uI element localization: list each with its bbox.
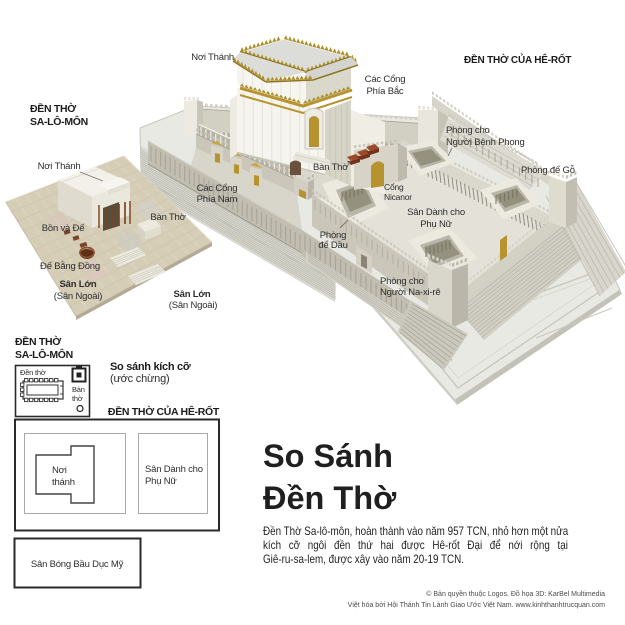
svg-text:Bồn và Đế: Bồn và Đế xyxy=(42,223,85,234)
svg-text:Sân Lớn: Sân Lớn xyxy=(173,289,210,300)
svg-text:Phòng cho: Phòng cho xyxy=(446,125,490,136)
svg-text:Nơi Thánh: Nơi Thánh xyxy=(38,161,81,172)
svg-text:So Sánh: So Sánh xyxy=(263,438,393,474)
svg-text:Đền Thờ: Đền Thờ xyxy=(263,480,397,516)
svg-text:ĐỀN THỜ CỦA HÊ-RỐT: ĐỀN THỜ CỦA HÊ-RỐT xyxy=(108,404,220,418)
svg-text:Đền thờ: Đền thờ xyxy=(20,368,46,377)
svg-text:SA-LÔ-MÔN: SA-LÔ-MÔN xyxy=(30,115,88,128)
svg-text:ĐỀN THỜ CỦA HÊ-RỐT: ĐỀN THỜ CỦA HÊ-RỐT xyxy=(464,52,571,66)
svg-text:thờ: thờ xyxy=(72,394,83,403)
svg-text:Các Cổng: Các Cổng xyxy=(365,74,406,85)
svg-text:So sánh kích cỡ: So sánh kích cỡ xyxy=(110,361,191,373)
svg-text:Đế Bằng Đồng: Đế Bằng Đồng xyxy=(40,261,100,272)
svg-text:(Sân Ngoài): (Sân Ngoài) xyxy=(169,300,218,311)
svg-text:Cổng: Cổng xyxy=(384,182,404,192)
svg-text:Sân Dành cho: Sân Dành cho xyxy=(145,464,203,475)
svg-text:Phòng để Gỗ: Phòng để Gỗ xyxy=(521,165,575,176)
svg-text:Sân Dành cho: Sân Dành cho xyxy=(407,207,465,218)
svg-text:Người Na-xi-rê: Người Na-xi-rê xyxy=(380,287,440,298)
svg-text:(ước chừng): (ước chừng) xyxy=(110,373,169,385)
svg-text:Bàn: Bàn xyxy=(72,385,85,394)
svg-text:Người Bệnh Phong: Người Bệnh Phong xyxy=(446,137,525,148)
svg-text:Phụ Nữ: Phụ Nữ xyxy=(420,219,452,230)
svg-text:ĐỀN THỜ: ĐỀN THỜ xyxy=(15,335,61,348)
svg-text:Các Cổng: Các Cổng xyxy=(197,183,238,194)
svg-text:Nicanor: Nicanor xyxy=(384,192,412,202)
svg-text:Phía Bắc: Phía Bắc xyxy=(367,86,404,97)
svg-text:Nơi Thánh: Nơi Thánh xyxy=(191,52,234,63)
svg-text:Phụ Nữ: Phụ Nữ xyxy=(145,476,177,487)
svg-text:Nơi: Nơi xyxy=(52,465,67,476)
svg-text:(Sân Ngoài): (Sân Ngoài) xyxy=(54,291,103,302)
svg-text:Sân Bóng Bầu Dục Mỹ: Sân Bóng Bầu Dục Mỹ xyxy=(31,559,124,570)
svg-text:ĐỀN THỜ: ĐỀN THỜ xyxy=(30,102,76,115)
svg-text:Phía Nam: Phía Nam xyxy=(197,194,238,205)
svg-text:SA-LÔ-MÔN: SA-LÔ-MÔN xyxy=(15,348,73,361)
svg-text:để Dầu: để Dầu xyxy=(318,240,347,251)
svg-text:Bàn Thờ: Bàn Thờ xyxy=(313,162,348,173)
svg-text:Sân Lớn: Sân Lớn xyxy=(59,279,96,290)
svg-text:thánh: thánh xyxy=(52,477,75,488)
svg-text:Bàn Thờ: Bàn Thờ xyxy=(150,212,185,223)
svg-text:Phòng cho: Phòng cho xyxy=(380,276,424,287)
